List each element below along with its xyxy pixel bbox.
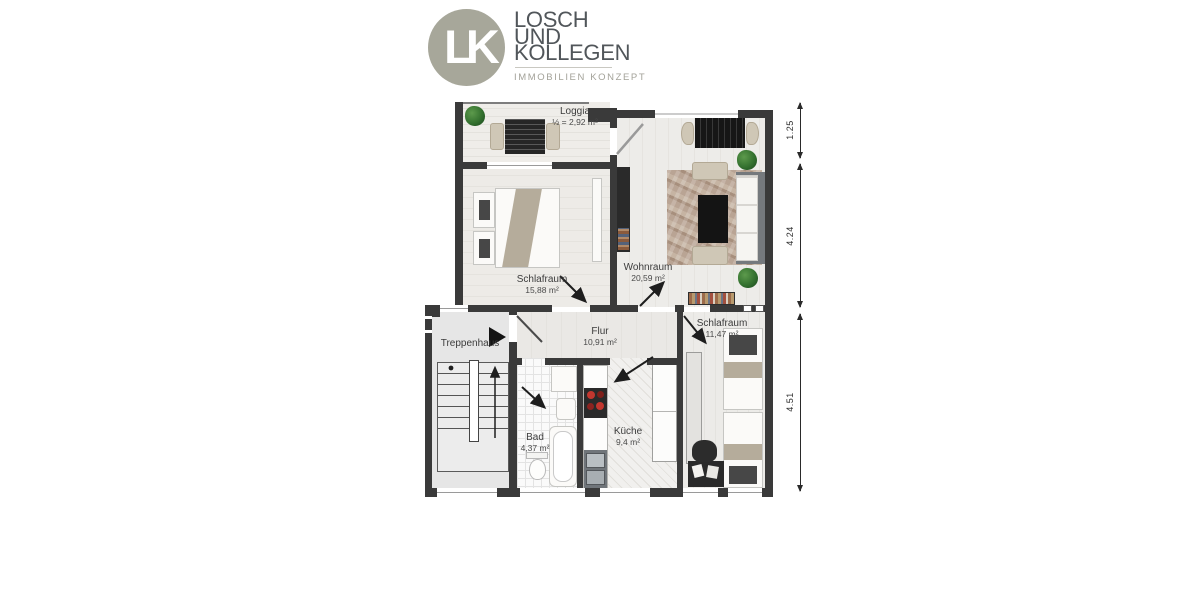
room-area: 9,4 m² — [614, 437, 642, 448]
window-tick — [425, 316, 432, 319]
wall-niche — [755, 305, 764, 312]
floorplan-page: LK LOSCH UND KOLLEGEN IMMOBILIEN KONZEPT — [0, 0, 1200, 600]
wall — [650, 488, 683, 497]
wall — [509, 342, 517, 497]
window — [437, 488, 497, 497]
room-label-schlafraum-rechts: Schlafraum 11,47 m² — [697, 318, 748, 340]
room-area: 4,37 m² — [521, 443, 550, 454]
window — [520, 488, 585, 497]
dining-chair — [681, 122, 694, 145]
room-label-schlafraum-links: Schlafraum 15,88 m² — [517, 274, 568, 296]
wall — [710, 305, 743, 312]
wall — [610, 118, 617, 128]
dimension-value: 1.25 — [785, 120, 795, 140]
window — [683, 488, 718, 497]
wall — [677, 305, 683, 488]
dimension-chain: 1.25 4.24 4.51 — [780, 100, 820, 500]
stair-rail — [469, 360, 479, 442]
wall — [455, 102, 463, 312]
room-area: 15,88 m² — [517, 285, 568, 296]
bed-pillow — [729, 466, 757, 484]
dimension-value: 4.51 — [785, 392, 795, 412]
room-name: Schlafraum — [517, 274, 568, 285]
room-name: Schlafraum — [697, 318, 748, 329]
logo-wordmark: LOSCH UND KOLLEGEN IMMOBILIEN KONZEPT — [514, 12, 646, 83]
wall — [610, 155, 617, 307]
stove-burner — [596, 402, 604, 410]
sideboard-books — [688, 292, 735, 305]
wall — [585, 488, 600, 497]
room-name: Treppenhaus — [441, 338, 500, 349]
wall-niche — [743, 305, 752, 312]
wall — [545, 358, 610, 365]
sink-basin — [586, 470, 605, 485]
wall — [497, 488, 520, 497]
wall — [425, 488, 437, 497]
armchair — [692, 162, 728, 180]
plant-icon — [738, 268, 758, 288]
room-name: Bad — [526, 432, 544, 443]
kitchen-tall-unit — [652, 362, 677, 462]
stove-burner — [587, 391, 595, 399]
wall — [647, 358, 677, 365]
bathtub-inner — [553, 431, 573, 482]
loggia-balustrade — [463, 102, 589, 104]
bed-pillow — [479, 239, 490, 258]
brand-name-line3: KOLLEGEN — [514, 45, 646, 62]
wall — [765, 110, 773, 497]
loggia-table — [505, 119, 545, 154]
bath-sink — [556, 398, 576, 420]
brand-tagline: IMMOBILIEN KONZEPT — [514, 72, 646, 83]
wall — [455, 162, 487, 169]
dining-chair — [746, 122, 759, 145]
window-tick — [425, 330, 432, 333]
room-label-bad: Bad 4,37 m² — [521, 432, 550, 454]
room-label-kueche: Küche 9,4 m² — [614, 426, 642, 448]
wall — [764, 305, 773, 312]
stove-burner — [587, 403, 594, 410]
window — [440, 305, 468, 312]
kitchen-unit-divider — [653, 411, 676, 412]
logo-monogram-circle: LK — [428, 9, 505, 86]
wall — [762, 488, 773, 497]
toilet-bowl — [529, 459, 546, 480]
logo-divider — [515, 67, 612, 68]
wall — [577, 365, 583, 488]
wall — [552, 162, 617, 169]
room-label-wohnraum: Wohnraum 20,59 m² — [624, 262, 673, 284]
logo-monogram: LK — [444, 19, 493, 74]
room-label-treppenhaus: Treppenhaus — [441, 338, 500, 349]
dimension-line — [800, 314, 801, 491]
shelf-books — [618, 228, 629, 250]
room-area: 10,91 m² — [583, 337, 617, 348]
desk-papers — [706, 465, 719, 479]
room-name: Wohnraum — [624, 262, 673, 273]
plant-icon — [465, 106, 485, 126]
room-name: Flur — [591, 326, 608, 337]
window — [487, 162, 552, 169]
window — [600, 488, 650, 497]
room-name: Küche — [614, 426, 642, 437]
room-area: 20,59 m² — [624, 273, 673, 284]
desk-chair — [692, 440, 717, 462]
window — [728, 488, 762, 497]
brand-logo: LK LOSCH UND KOLLEGEN IMMOBILIEN KONZEPT — [428, 9, 688, 99]
window — [655, 110, 738, 118]
sink-basin — [586, 453, 605, 468]
room-label-loggia: Loggia ½ = 2,92 m² — [552, 106, 598, 128]
wall — [590, 305, 638, 312]
wall — [468, 305, 552, 312]
armchair — [692, 246, 728, 265]
wall — [718, 488, 728, 497]
room-label-flur: Flur 10,91 m² — [583, 326, 617, 348]
bed-pillow — [479, 200, 490, 220]
bath-cabinet — [551, 366, 577, 392]
dimension-value: 4.24 — [785, 226, 795, 246]
wall — [509, 358, 522, 365]
dimension-line — [800, 103, 801, 158]
wall — [610, 110, 655, 118]
bed-blanket — [724, 444, 762, 460]
bed-blanket — [724, 362, 762, 378]
room-area: 11,47 m² — [697, 329, 748, 340]
stove-burner — [597, 391, 604, 398]
plant-icon — [737, 150, 757, 170]
coffee-table — [698, 195, 728, 243]
wardrobe — [592, 178, 602, 262]
dining-table — [695, 118, 745, 148]
dimension-line — [800, 164, 801, 307]
loggia-chair — [490, 123, 504, 150]
wall — [509, 312, 517, 315]
sofa-cushions — [736, 175, 758, 261]
room-name: Loggia — [560, 106, 590, 117]
wall — [425, 305, 432, 497]
floorplan: Loggia ½ = 2,92 m² Schlafraum 15,88 m² W… — [425, 100, 775, 500]
room-area: ½ = 2,92 m² — [552, 117, 598, 128]
